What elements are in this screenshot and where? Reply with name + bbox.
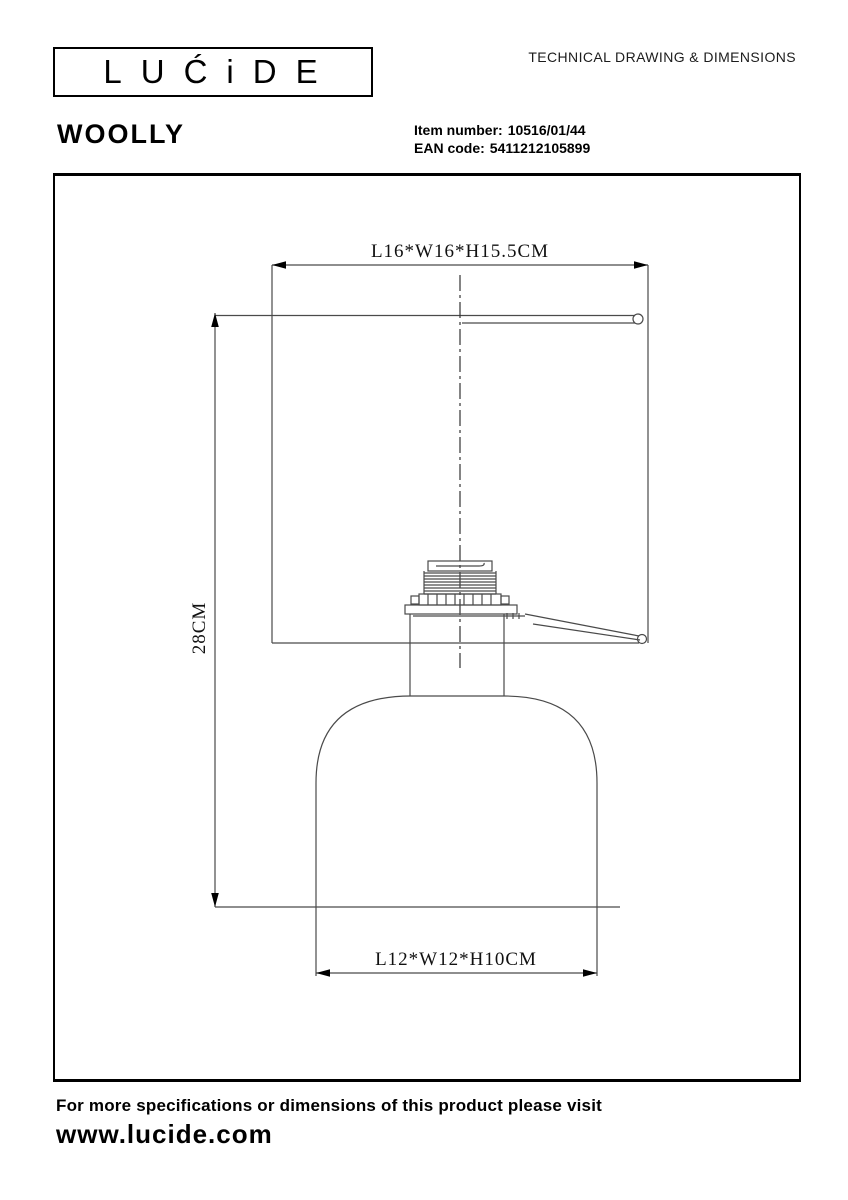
lamp-neck xyxy=(410,614,504,696)
lucide-logo-text: LUĆiDE xyxy=(55,49,371,95)
technical-sheet: LUĆiDE TECHNICAL DRAWING & DIMENSIONS WO… xyxy=(0,0,848,1200)
item-number-row: Item number:10516/01/44 xyxy=(414,121,590,139)
ean-code-row: EAN code:5411212105899 xyxy=(414,139,590,157)
item-number-value: 10516/01/44 xyxy=(508,122,586,138)
base-dimension-label: L12*W12*H10CM xyxy=(375,949,537,970)
technical-drawing: L16*W16*H15.5CM 28CM L12*W12*H10CM xyxy=(55,176,799,1079)
product-identifiers: Item number:10516/01/44 EAN code:5411212… xyxy=(414,121,590,157)
dimension-arrows xyxy=(211,261,648,977)
ean-code-label: EAN code: xyxy=(414,140,485,156)
shade-dimension-label: L16*W16*H15.5CM xyxy=(371,241,549,262)
arrow-left-icon xyxy=(272,261,286,269)
socket-cap-curl xyxy=(436,563,484,566)
arrow-left-icon xyxy=(316,969,330,977)
item-number-label: Item number: xyxy=(414,122,503,138)
arrow-right-icon xyxy=(634,261,648,269)
ean-code-value: 5411212105899 xyxy=(490,140,590,156)
website-url: www.lucide.com xyxy=(56,1119,273,1150)
shade-support-arm xyxy=(525,614,647,644)
height-dimension-label: 28CM xyxy=(189,602,210,655)
lucide-logo: LUĆiDE xyxy=(53,47,373,97)
drawing-frame: L16*W16*H15.5CM 28CM L12*W12*H10CM xyxy=(53,173,801,1082)
socket-mounting-plate xyxy=(405,605,517,614)
arrow-down-icon xyxy=(211,893,219,907)
footer-note: For more specifications or dimensions of… xyxy=(56,1096,602,1116)
lamp-socket xyxy=(405,561,525,619)
shade-ring-eyelet xyxy=(633,314,643,324)
document-title: TECHNICAL DRAWING & DIMENSIONS xyxy=(528,49,796,65)
lamp-base-outline xyxy=(316,696,597,907)
product-name: WOOLLY xyxy=(57,119,185,150)
arrow-right-icon xyxy=(583,969,597,977)
height-dimension-line xyxy=(215,313,620,907)
